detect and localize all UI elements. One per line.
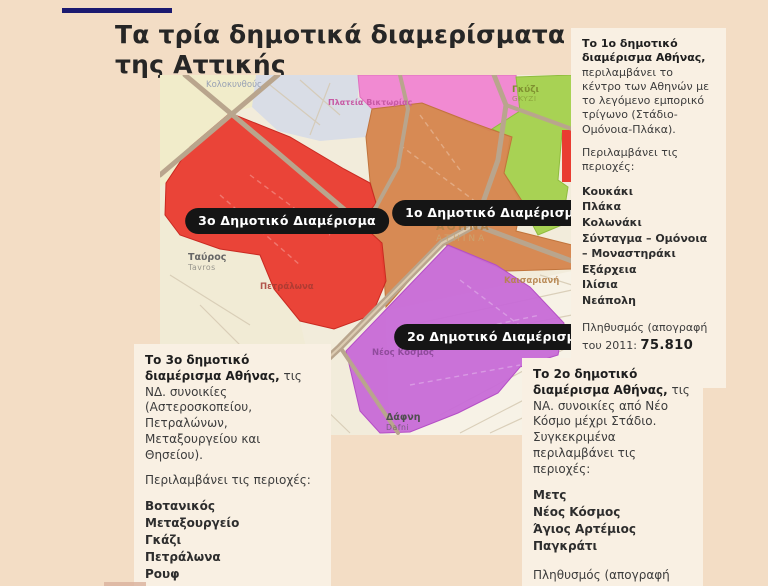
- population-intro: Πληθυσμός (απογραφή: [582, 320, 715, 337]
- map-label-tavros-latin: Tavros: [188, 264, 226, 273]
- map-label-dafni-greek: Δάφνη: [386, 412, 421, 423]
- district-2-map-pill: 2ο Δημοτικό Διαμέρισμα: [394, 324, 572, 350]
- district-2-description: Το 2ο δημοτικό διαμέρισμα Αθήνας, τις ΝΑ…: [533, 367, 692, 478]
- district-3-includes-label: Περιλαμβάνει τις περιοχές:: [145, 473, 320, 489]
- area-list-item: Γκάζι: [145, 532, 320, 549]
- map-label-athina-latin: ATHINA: [436, 234, 491, 244]
- map-label-plateia-viktorias: Πλατεία Βικτωρίας: [328, 98, 412, 107]
- map-label-kolokynthous: Κολοκυνθούς: [206, 81, 262, 91]
- map-label-gkyzi: ΓκύζιGKYZI: [512, 85, 539, 104]
- population-2011-value: 75.810: [640, 338, 693, 353]
- district-2-population: Πληθυσμός (απογραφή του 2011: 103.004 (2…: [533, 566, 692, 586]
- area-list-item: Παγκράτι: [533, 538, 692, 555]
- area-list-item: Ρουφ: [145, 566, 320, 583]
- area-list-item: Σύνταγμα – Ομόνοια – Μοναστηράκι: [582, 231, 715, 262]
- title-accent-line: [62, 8, 172, 13]
- area-list-item: Κολωνάκι: [582, 215, 715, 231]
- area-list-item: Μεταξουργείο: [145, 515, 320, 532]
- population-2011-line: του 2011: 75.810: [582, 336, 715, 356]
- district-1-area-list: ΚουκάκιΠλάκαΚολωνάκιΣύνταγμα – Ομόνοια –…: [582, 184, 715, 309]
- district-1-includes-label: Περιλαμβάνει τις περιοχές:: [582, 146, 715, 175]
- population-2011-label: του 2011:: [582, 339, 640, 352]
- district-3-area-list: ΒοτανικόςΜεταξουργείοΓκάζιΠετράλωναΡουφ: [145, 498, 320, 583]
- district-3-heading: Το 3ο δημοτικό διαμέρισμα Αθήνας,: [145, 353, 280, 383]
- area-list-item: Πετράλωνα: [145, 549, 320, 566]
- cropped-bottom-element: [104, 582, 146, 586]
- district-3-description: Το 3ο δημοτικό διαμέρισμα Αθήνας, τις ΝΔ…: [145, 353, 320, 464]
- district-1-heading: Το 1ο δημοτικό διαμέρισμα Αθήνας,: [582, 37, 705, 64]
- area-list-item: Νέος Κόσμος: [533, 504, 692, 521]
- district-2-info-box: Το 2ο δημοτικό διαμέρισμα Αθήνας, τις ΝΑ…: [522, 358, 703, 586]
- area-list-item: Ιλίσια: [582, 277, 715, 293]
- map-label-gkyzi-latin: GKYZI: [512, 95, 539, 103]
- district-1-description: Το 1ο δημοτικό διαμέρισμα Αθήνας, περιλα…: [582, 37, 715, 137]
- area-list-item: Νεάπολη: [582, 293, 715, 309]
- map-label-neos-kosmos: Νέος Κόσμος: [372, 349, 434, 359]
- map-label-tavros-greek: Ταύρος: [188, 252, 226, 263]
- map-label-tavros: ΤαύροςTavros: [188, 253, 226, 273]
- area-list-item: Μετς: [533, 487, 692, 504]
- population-intro: Πληθυσμός (απογραφή: [533, 566, 692, 584]
- area-list-item: Εξάρχεια: [582, 262, 715, 278]
- district-1-map-pill: 1ο Δημοτικό Διαμέρισμα: [392, 200, 572, 226]
- page-title: Τα τρία δημοτικά διαμερίσματατης Αττικής: [115, 20, 575, 80]
- district-3-info-box: Το 3ο δημοτικό διαμέρισμα Αθήνας, τις ΝΔ…: [134, 344, 331, 586]
- map-label-kaisariani: Καισαριανή: [504, 277, 559, 287]
- district-1-info-box: Το 1ο δημοτικό διαμέρισμα Αθήνας, περιλα…: [571, 28, 726, 388]
- area-list-item: Κουκάκι: [582, 184, 715, 200]
- map-label-dafni: ΔάφνηDafni: [386, 413, 421, 433]
- area-list-item: Πλάκα: [582, 199, 715, 215]
- area-list-item: Βοτανικός: [145, 498, 320, 515]
- district-2-area-list: ΜετςΝέος ΚόσμοςΆγιος ΑρτέμιοςΠαγκράτι: [533, 487, 692, 555]
- map-label-petralona: Πετράλωνα: [260, 283, 314, 293]
- map-label-dafni-latin: Dafni: [386, 424, 421, 433]
- district-2-heading: Το 2ο δημοτικό διαμέρισμα Αθήνας,: [533, 367, 668, 397]
- district-1-lead-text: περιλαμβάνει το κέντρο των Αθηνών με το …: [582, 66, 709, 136]
- district-3-map-pill: 3ο Δημοτικό Διαμέρισμα: [185, 208, 389, 234]
- area-list-item: Άγιος Αρτέμιος: [533, 521, 692, 538]
- page-title-line1: Τα τρία δημοτικά διαμερίσματα: [115, 20, 565, 49]
